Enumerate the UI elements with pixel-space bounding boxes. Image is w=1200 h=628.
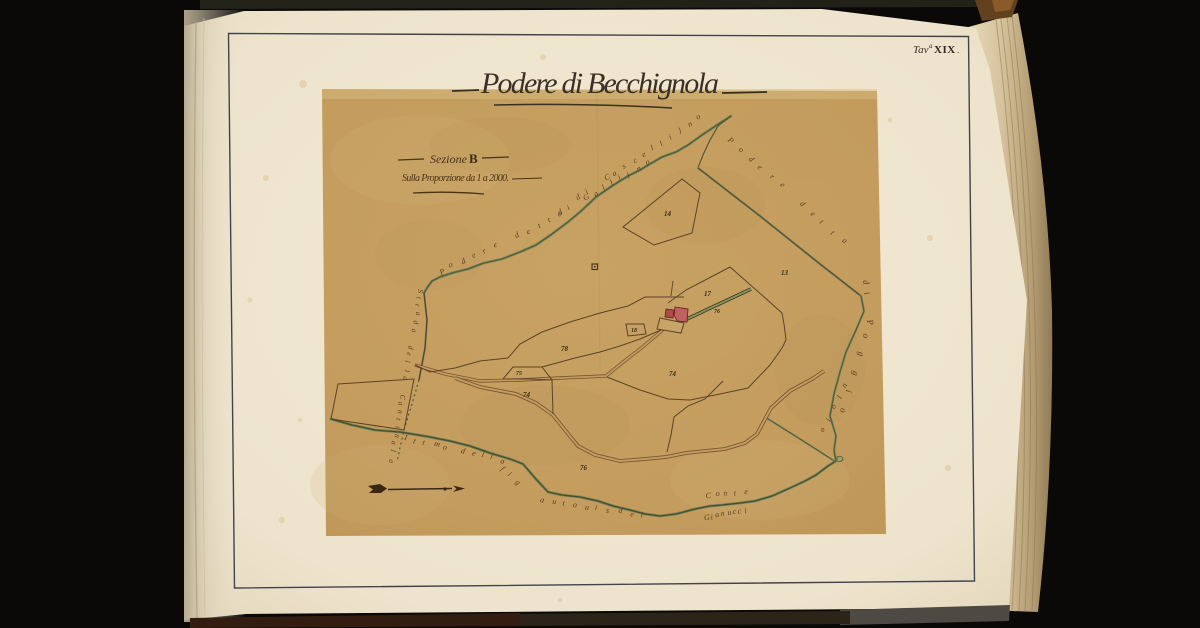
svg-text:78: 78 [561,345,569,353]
svg-text:18: 18 [631,328,637,334]
svg-text:14: 14 [664,210,672,218]
svg-text:Sulla Proporzione da 1 a 2000.: Sulla Proporzione da 1 a 2000. [402,173,509,184]
svg-text:76: 76 [580,464,588,472]
svg-text:75: 75 [516,371,522,377]
svg-text:74: 74 [669,370,677,378]
svg-text:a: a [929,42,933,50]
svg-text:.: . [957,45,959,55]
svg-text:17: 17 [704,290,712,298]
svg-text:Sezione: Sezione [430,152,468,166]
svg-text:13: 13 [781,269,789,277]
svg-text:74: 74 [523,391,531,399]
svg-text:76: 76 [714,309,720,315]
svg-text:XIX: XIX [934,44,956,56]
svg-text:B: B [469,151,478,166]
svg-text:Podere di Becchignola: Podere di Becchignola [480,67,719,100]
svg-text:Tav: Tav [913,44,929,56]
